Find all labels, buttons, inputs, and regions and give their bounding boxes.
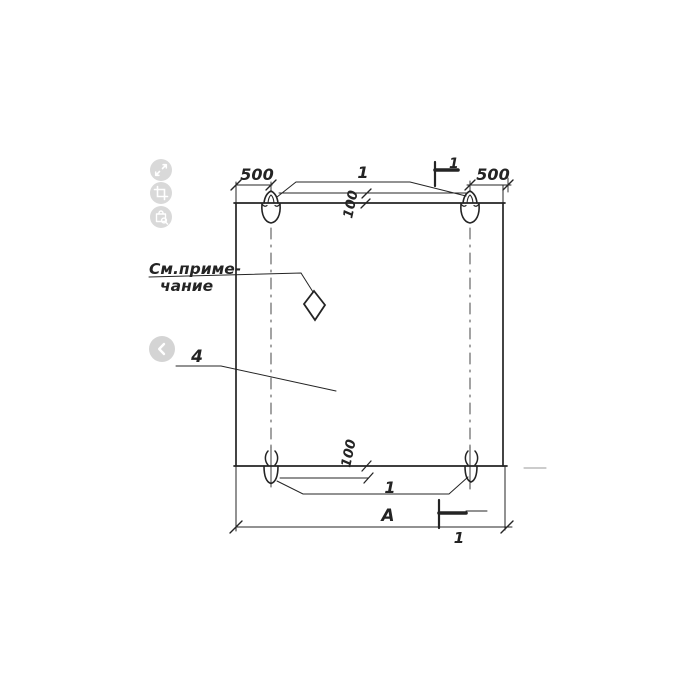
dimension-100-top: 100 <box>340 189 371 220</box>
dim-width-value: A <box>379 506 394 526</box>
pos-panel-label: 4 <box>190 347 203 367</box>
dim-500-right-value: 500 <box>476 165 509 184</box>
bag-search-icon <box>150 206 172 228</box>
section-mark-bottom: 1 <box>439 500 487 547</box>
centerlines <box>271 228 470 452</box>
leader-loops-top: 1 <box>277 163 466 197</box>
chevron-left-icon <box>149 336 175 362</box>
note-line2: чание <box>160 277 213 295</box>
dim-500-left-value: 500 <box>240 165 273 184</box>
expand-button[interactable] <box>150 159 172 181</box>
crop-icon <box>150 182 172 204</box>
pos-loops-bottom-label: 1 <box>384 478 395 497</box>
leader-loops-bottom: 1 <box>277 477 468 497</box>
section-top-label: 1 <box>449 156 459 172</box>
dimension-100-bottom: 100 <box>338 438 373 483</box>
expand-icon <box>150 159 172 181</box>
dim-100-bottom-value: 100 <box>338 438 360 469</box>
dim-100-top-value: 100 <box>340 189 362 220</box>
pos-loops-top-label: 1 <box>357 163 368 182</box>
note-callout: См.приме- чание <box>149 260 325 320</box>
image-viewer: 500 500 1 1 <box>0 0 700 700</box>
section-mark-top: 1 <box>435 156 459 186</box>
previous-image-button[interactable] <box>149 336 175 362</box>
dimension-width-A: A <box>230 506 513 533</box>
dimension-500-right: 500 <box>465 165 513 190</box>
panel-outline <box>234 203 507 466</box>
technical-drawing: 500 500 1 1 <box>0 0 700 700</box>
visual-search-button[interactable] <box>150 206 172 228</box>
crop-button[interactable] <box>150 182 172 204</box>
loop-axis-lines <box>271 447 470 489</box>
panel-position-callout: 4 <box>176 347 336 391</box>
position-marker-diamond <box>304 291 325 320</box>
section-bottom-label: 1 <box>454 529 464 547</box>
dimension-500-left: 500 <box>231 165 276 190</box>
lifting-loop-top-left <box>262 191 280 223</box>
